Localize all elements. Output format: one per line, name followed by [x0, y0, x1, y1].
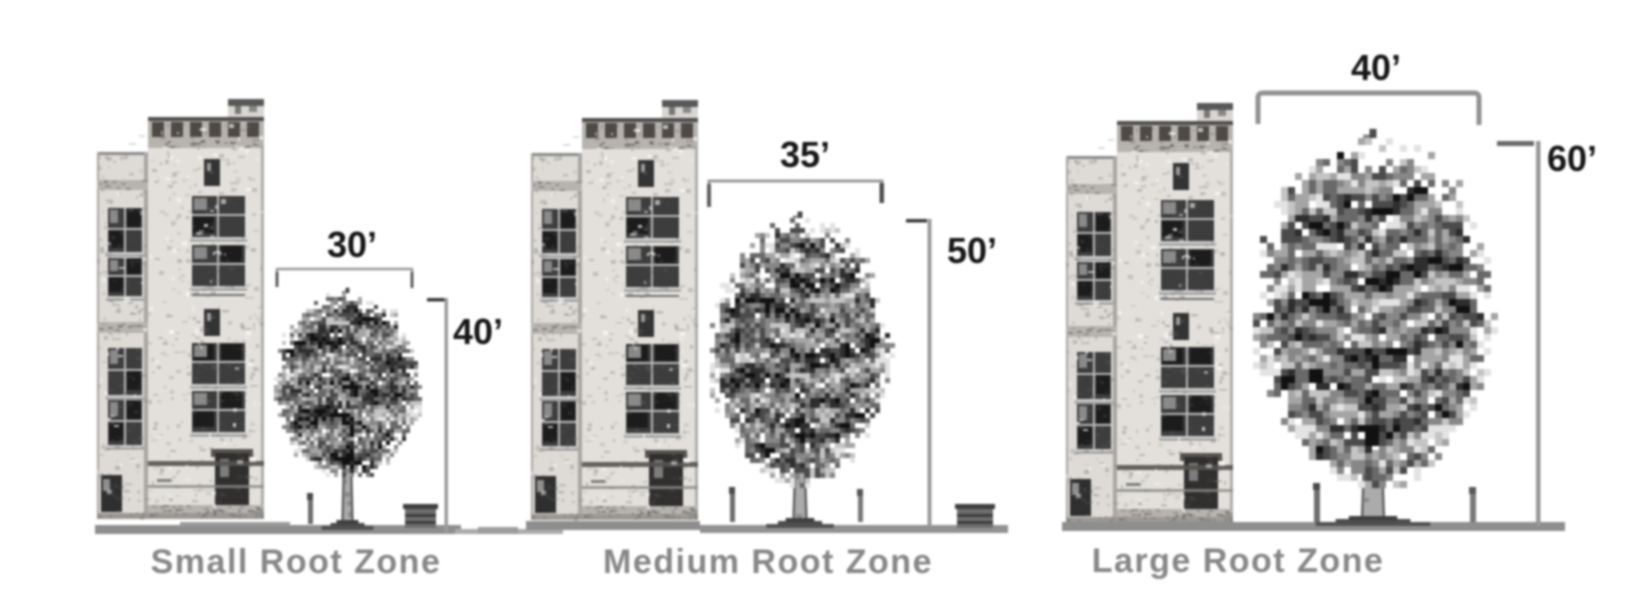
svg-text:Medium Root Zone: Medium Root Zone: [603, 543, 933, 581]
svg-text:50’: 50’: [947, 230, 997, 271]
svg-text:40’: 40’: [1351, 47, 1401, 88]
svg-text:60’: 60’: [1547, 138, 1597, 179]
svg-text:35’: 35’: [780, 134, 830, 175]
svg-text:40’: 40’: [453, 311, 503, 352]
svg-text:30’: 30’: [327, 224, 377, 265]
svg-text:Small Root Zone: Small Root Zone: [151, 543, 442, 581]
svg-text:Large Root Zone: Large Root Zone: [1092, 542, 1385, 580]
